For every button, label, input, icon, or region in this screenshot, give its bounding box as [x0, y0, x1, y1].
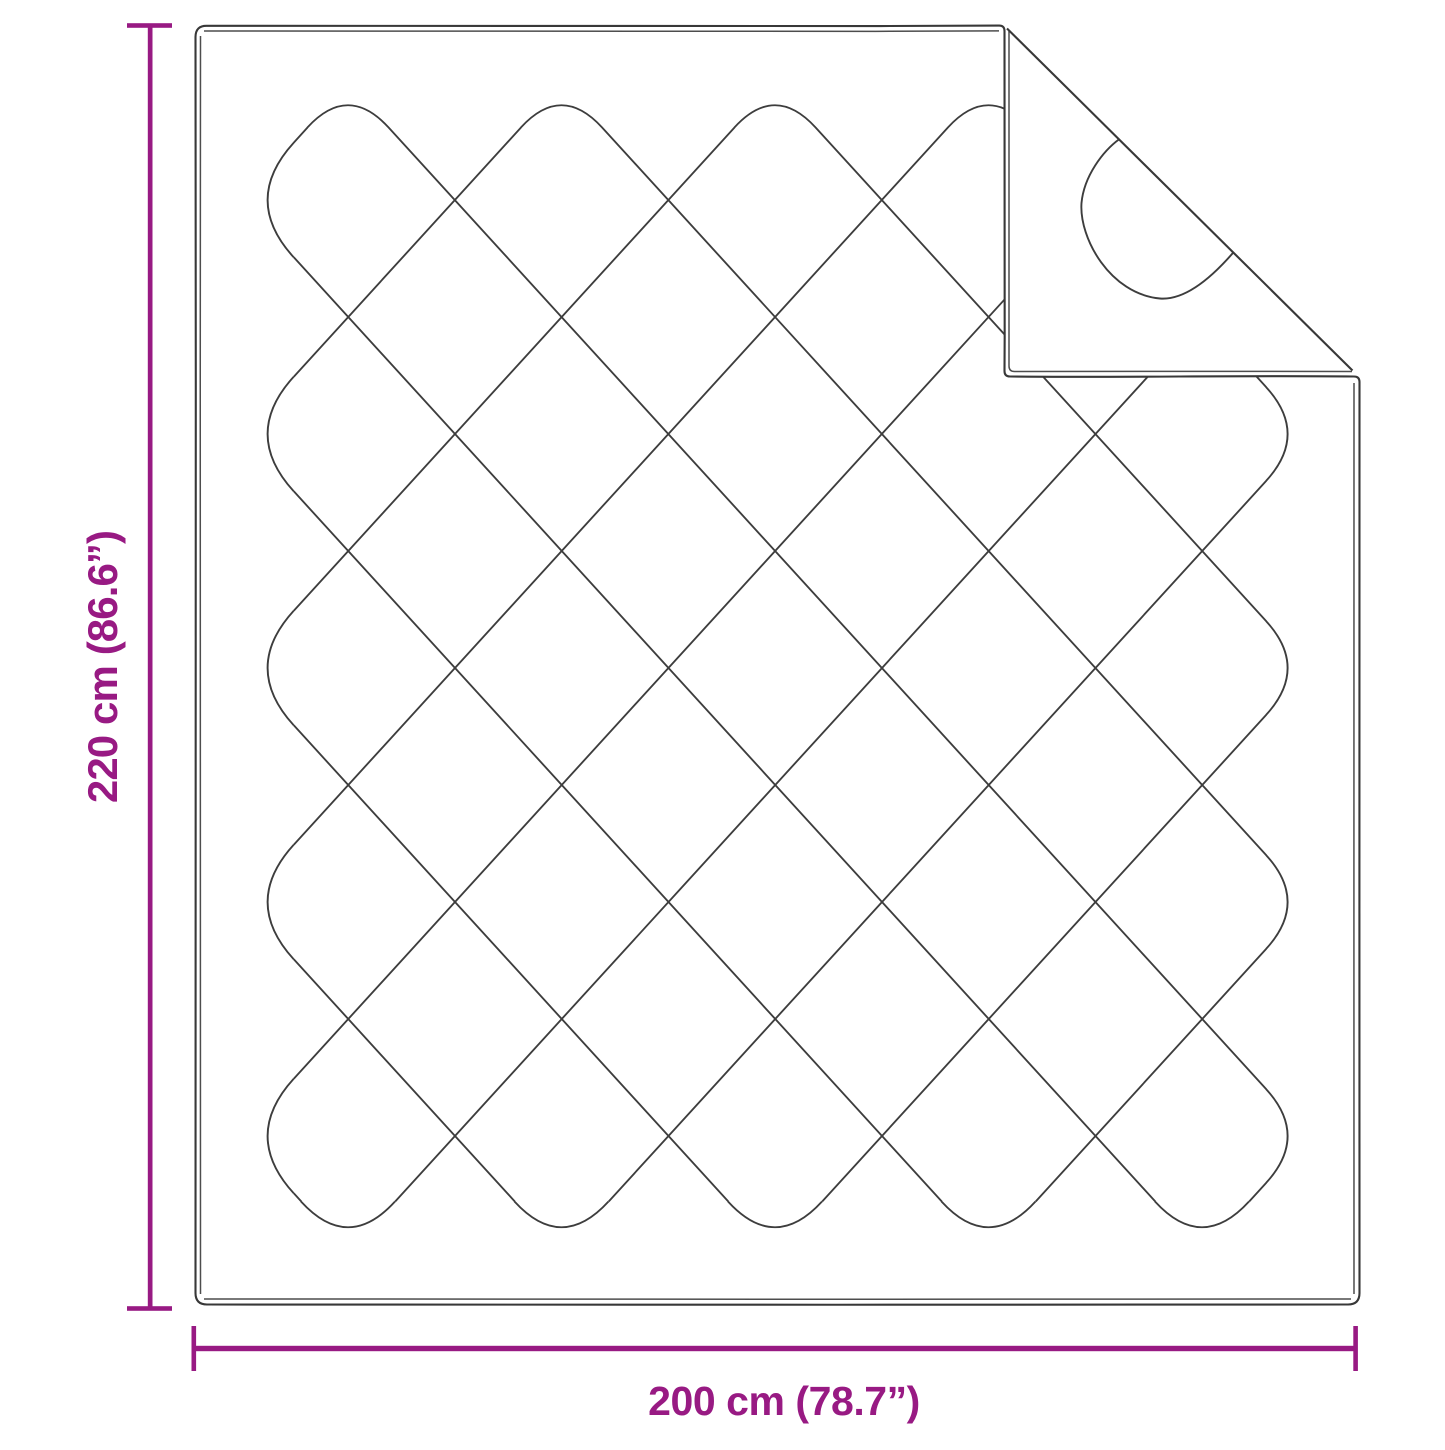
svg-text:200 cm (78.7”): 200 cm (78.7”): [648, 1378, 920, 1424]
svg-text:220 cm (86.6”): 220 cm (86.6”): [79, 531, 126, 803]
